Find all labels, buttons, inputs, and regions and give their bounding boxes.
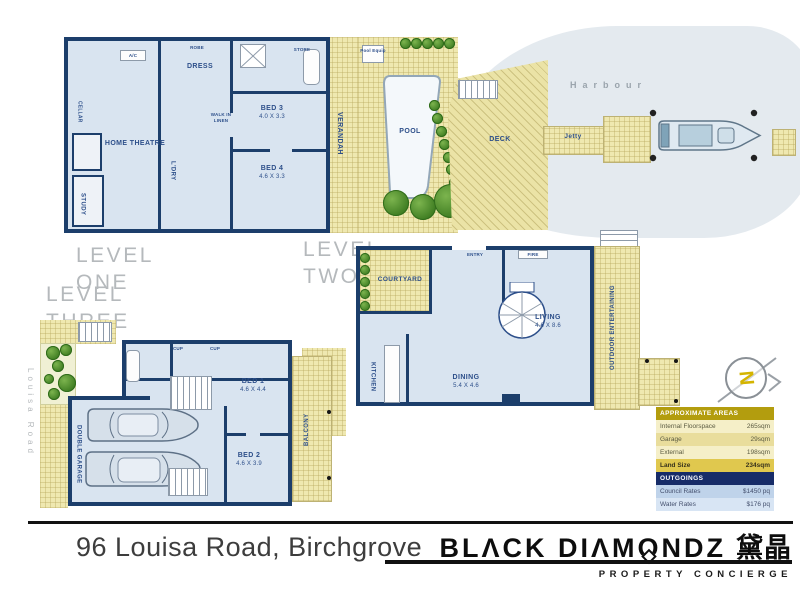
caption-line: LEVEL [46, 281, 130, 308]
plant-icon [360, 289, 370, 299]
street-label: Louisa Road [26, 368, 35, 478]
double-garage-label: DOUBLE GARAGE [74, 408, 82, 500]
tree-icon [58, 374, 76, 392]
compass-north: N [734, 370, 757, 386]
hedge-icon [439, 139, 450, 150]
pool-shape [382, 74, 444, 202]
cupboard-label: CUP [168, 346, 188, 352]
cupboard-label: CUP [205, 346, 225, 352]
post-dot [327, 476, 331, 480]
brand-tagline: PROPERTY CONCIERGE [599, 569, 792, 580]
shower-icon [240, 44, 266, 68]
bed3-name: BED 3 [261, 105, 284, 112]
row-value: $176 pq [747, 501, 771, 508]
lower-stairs [168, 468, 208, 496]
row-value: 265sqm [747, 423, 770, 430]
hedge-icon [436, 126, 447, 137]
row-value: 234sqm [746, 462, 770, 469]
walk-in-linen-label: WALK IN LINEN [203, 112, 239, 123]
harbour-label: Harbour [570, 80, 647, 90]
courtyard-label: COURTYARD [372, 276, 428, 284]
row-label: External [660, 449, 684, 456]
bathtub-icon [126, 350, 140, 382]
plant-icon [360, 277, 370, 287]
ac-label: A/C [120, 53, 146, 59]
row-value: $1450 pq [743, 488, 770, 495]
bed4-name: BED 4 [261, 165, 284, 172]
bathtub-icon [303, 49, 320, 85]
outdoor-entertaining-label: OUTDOOR ENTERTAINING [610, 262, 618, 394]
bed2-dims: 4.6 X 3.9 [218, 461, 280, 469]
entry-gap [452, 244, 486, 250]
living-dims: 4.6 X 8.6 [518, 323, 578, 331]
row-label: Land Size [660, 462, 690, 469]
tree-icon [60, 344, 72, 356]
tree-icon [46, 346, 60, 360]
table-row-land-size: Land Size 234sqm [656, 459, 774, 472]
dress-label: DRESS [178, 63, 222, 72]
car-icon [84, 406, 202, 444]
row-label: Garage [660, 436, 682, 443]
bed1-label: BED 1 4.6 X 4.4 [222, 378, 284, 394]
tree-icon [44, 374, 54, 384]
row-label: Water Rates [660, 501, 696, 508]
verandah-label: VERANDAH [334, 100, 343, 166]
deck-stairs [458, 80, 498, 99]
plant-icon [360, 265, 370, 275]
internal-stairs [170, 376, 212, 410]
outgoings-title: OUTGOINGS [656, 472, 774, 485]
areas-title: APPROXIMATE AREAS [656, 407, 774, 420]
property-address: 96 Louisa Road, Birchgrove [76, 532, 422, 563]
post-dot [674, 359, 678, 363]
jetty-far-platform [772, 129, 796, 156]
bed4-dims: 4.6 X 3.3 [240, 174, 304, 182]
brand-text: BLΛCK DIΛM [439, 533, 637, 563]
post-dot [674, 399, 678, 403]
robe-label: ROBE [186, 45, 208, 51]
bed4-label: BED 4 4.6 X 3.3 [240, 165, 304, 181]
tree-icon [52, 360, 64, 372]
table-row: Council Rates $1450 pq [656, 485, 774, 498]
table-row: Garage 29sqm [656, 433, 774, 446]
plant-icon [360, 253, 370, 263]
bed1-name: BED 1 [242, 378, 265, 385]
home-theatre-label: HOME THEATRE [98, 140, 172, 149]
bush-icon [383, 190, 409, 216]
cellar-label: CELLAR [76, 98, 82, 126]
plant-icon [360, 301, 370, 311]
table-row: Internal Floorspace 265sqm [656, 420, 774, 433]
brand-text: NDZ [662, 533, 727, 563]
balcony-area [292, 356, 332, 502]
table-row: External 198sqm [656, 446, 774, 459]
kitchen-bench [384, 345, 400, 403]
fireplace-label: FIRE [518, 252, 548, 258]
bed3-dims: 4.0 X 3.3 [240, 114, 304, 122]
dining-dims: 5.4 X 4.6 [436, 383, 496, 391]
row-value: 29sqm [750, 436, 770, 443]
bed3-label: BED 3 4.0 X 3.3 [240, 105, 304, 121]
bed1-dims: 4.6 X 4.4 [222, 387, 284, 395]
table-row: Water Rates $176 pq [656, 498, 774, 511]
hedge-icon [429, 100, 440, 111]
living-label: LIVING 4.6 X 8.6 [518, 314, 578, 330]
caption-line: LEVEL [76, 242, 154, 269]
hedge-icon [411, 38, 422, 49]
row-label: Internal Floorspace [660, 423, 716, 430]
hedge-icon [433, 38, 444, 49]
dining-label: DINING 5.4 X 4.6 [436, 374, 496, 390]
hedge-icon [444, 38, 455, 49]
pool-label: POOL [390, 128, 430, 137]
balcony-label: BALCONY [304, 390, 312, 470]
jetty-label: Jetty [548, 133, 598, 141]
deck-label: DECK [480, 136, 520, 145]
living-name: LIVING [535, 314, 561, 321]
pool-equip-label: Pool Equip [360, 48, 386, 54]
bed2-name: BED 2 [238, 452, 261, 459]
entry-label: ENTRY [460, 252, 490, 258]
entry-stairs [78, 322, 112, 342]
tree-icon [48, 388, 60, 400]
bed2-label: BED 2 4.6 X 3.9 [218, 452, 280, 468]
hedge-icon [422, 38, 433, 49]
footer-divider [28, 521, 793, 524]
brand-cjk: 黛晶 [736, 533, 792, 563]
post-dot [645, 359, 649, 363]
areas-table: APPROXIMATE AREAS Internal Floorspace 26… [656, 407, 774, 511]
hedge-icon [400, 38, 411, 49]
hedge-icon [432, 113, 443, 124]
spiral-stairs-icon [494, 282, 550, 340]
kitchen-label: KITCHEN [368, 352, 376, 402]
brand-underline [385, 560, 792, 564]
row-label: Council Rates [660, 488, 700, 495]
dining-name: DINING [453, 374, 480, 381]
study-label: STUDY [78, 182, 86, 226]
boat-icon [648, 106, 764, 164]
bush-icon [410, 194, 436, 220]
laundry-label: L'DRY [168, 150, 176, 192]
jetty-head [603, 116, 651, 163]
compass-icon: N [712, 348, 782, 408]
store-label: STORE [288, 47, 316, 53]
post-dot [327, 410, 331, 414]
floorplan-page: Harbour VERANDAH Pool Equip POOL DECK Je… [0, 0, 800, 608]
row-value: 198sqm [747, 449, 770, 456]
